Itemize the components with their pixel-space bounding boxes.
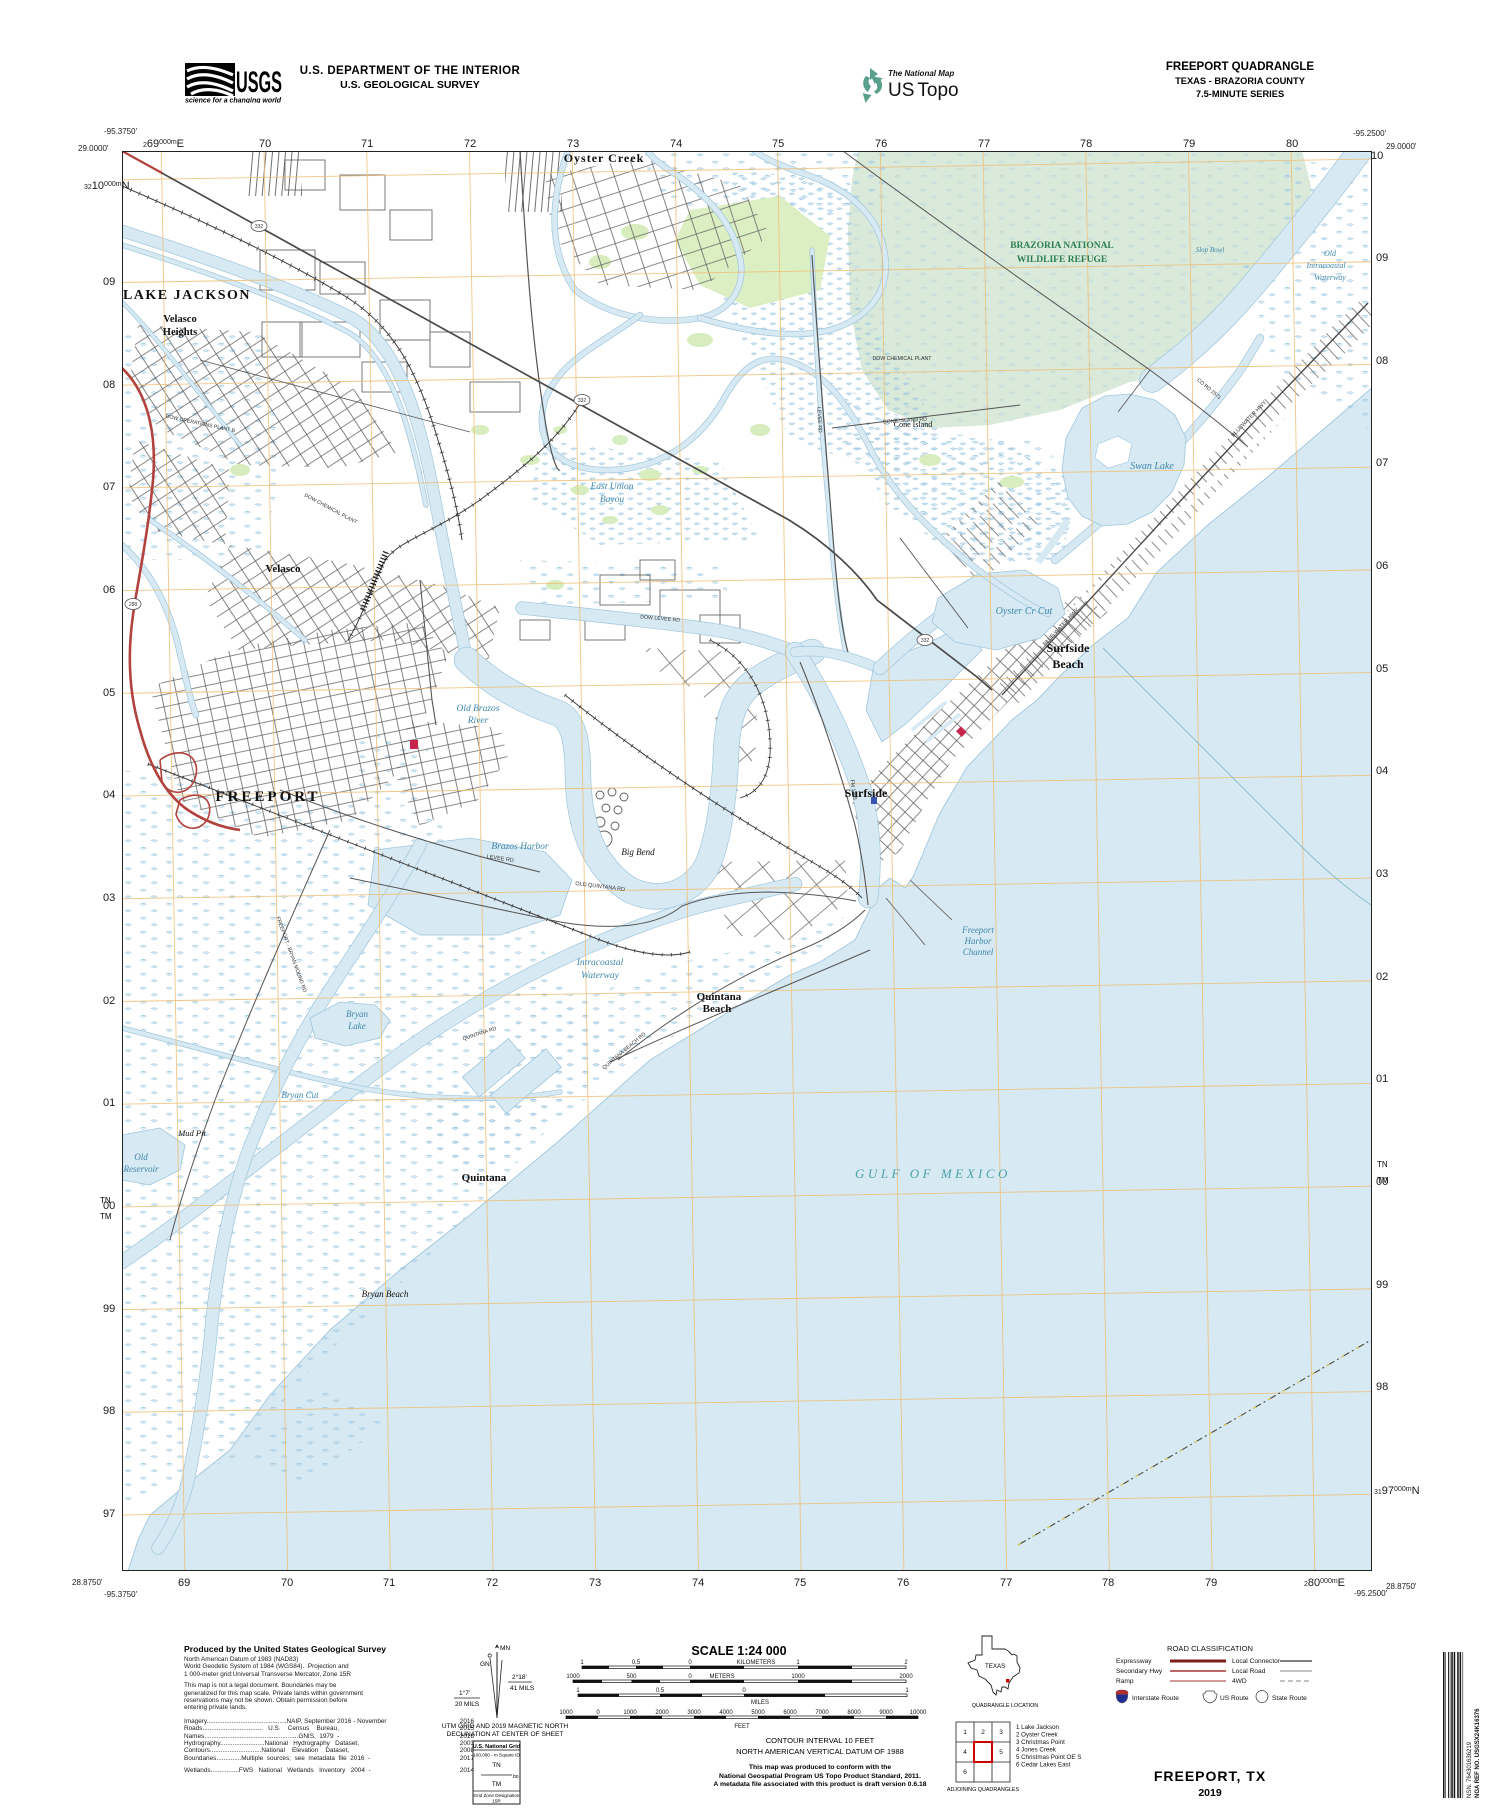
svg-text:Secondary Hwy: Secondary Hwy bbox=[1116, 1668, 1163, 1675]
svg-text:1000: 1000 bbox=[566, 1674, 580, 1680]
svg-text:bo: bo bbox=[513, 1774, 519, 1780]
svg-text:Ramp: Ramp bbox=[1116, 1678, 1134, 1685]
svg-text:U.S. National Grid: U.S. National Grid bbox=[473, 1744, 521, 1750]
svg-text:0.5: 0.5 bbox=[632, 1660, 641, 1666]
svg-text:1: 1 bbox=[963, 1729, 967, 1736]
svg-text:TN: TN bbox=[492, 1762, 501, 1769]
svg-text:6: 6 bbox=[963, 1769, 967, 1776]
svg-text:State Route: State Route bbox=[1272, 1695, 1307, 1702]
svg-text:0.5: 0.5 bbox=[656, 1688, 665, 1694]
svg-text:KILOMETERS: KILOMETERS bbox=[737, 1660, 776, 1666]
svg-text:2: 2 bbox=[981, 1729, 985, 1736]
svg-text:2000: 2000 bbox=[899, 1674, 913, 1680]
svg-text:1000: 1000 bbox=[623, 1710, 637, 1716]
svg-text:5000: 5000 bbox=[751, 1710, 765, 1716]
svg-text:1: 1 bbox=[905, 1688, 909, 1694]
svg-text:GN: GN bbox=[480, 1661, 490, 1668]
svg-text:9000: 9000 bbox=[879, 1710, 893, 1716]
svg-text:USTopo: USTopo bbox=[888, 80, 959, 101]
svg-text:TM: TM bbox=[492, 1781, 501, 1788]
svg-text:4 Jones Creek: 4 Jones Creek bbox=[1016, 1747, 1057, 1754]
svg-text:science for a changing world: science for a changing world bbox=[185, 98, 282, 104]
svg-text:6000: 6000 bbox=[783, 1710, 797, 1716]
svg-text:4000: 4000 bbox=[719, 1710, 733, 1716]
svg-text:Interstate Route: Interstate Route bbox=[1132, 1695, 1179, 1702]
svg-text:3 Christmas Point: 3 Christmas Point bbox=[1016, 1739, 1065, 1746]
svg-text:QUADRANGLE LOCATION: QUADRANGLE LOCATION bbox=[972, 1703, 1039, 1709]
svg-text:Local Connector: Local Connector bbox=[1232, 1658, 1281, 1665]
svg-text:1000: 1000 bbox=[791, 1674, 805, 1680]
svg-text:15R: 15R bbox=[492, 1799, 501, 1804]
svg-text:1000: 1000 bbox=[560, 1710, 573, 1716]
svg-text:0: 0 bbox=[688, 1660, 692, 1666]
svg-text:TEXAS: TEXAS bbox=[985, 1663, 1005, 1670]
svg-text:2 Oyster Creek: 2 Oyster Creek bbox=[1016, 1732, 1059, 1739]
svg-text:1: 1 bbox=[576, 1688, 580, 1694]
svg-text:3: 3 bbox=[999, 1729, 1003, 1736]
svg-text:0: 0 bbox=[742, 1688, 746, 1694]
svg-text:Expressway: Expressway bbox=[1116, 1658, 1152, 1665]
svg-text:FEET: FEET bbox=[734, 1724, 750, 1730]
svg-text:ADJOINING QUADRANGLES: ADJOINING QUADRANGLES bbox=[947, 1787, 1020, 1793]
svg-text:4WD: 4WD bbox=[1232, 1678, 1247, 1685]
svg-text:10000: 10000 bbox=[910, 1710, 927, 1716]
svg-text:The National Map: The National Map bbox=[888, 69, 954, 78]
svg-text:1: 1 bbox=[796, 1660, 800, 1666]
svg-text:UTM GRID AND 2019 MAGNETIC NOR: UTM GRID AND 2019 MAGNETIC NORTH bbox=[442, 1723, 569, 1730]
svg-text:20 MILS: 20 MILS bbox=[455, 1701, 480, 1708]
svg-text:8000: 8000 bbox=[847, 1710, 861, 1716]
svg-text:5 Christmas Point OE S: 5 Christmas Point OE S bbox=[1016, 1754, 1081, 1761]
svg-text:NGA REF NO. USGSX24K16376: NGA REF NO. USGSX24K16376 bbox=[1475, 1708, 1481, 1798]
svg-text:41 MILS: 41 MILS bbox=[510, 1685, 535, 1692]
svg-text:0: 0 bbox=[596, 1710, 600, 1716]
svg-text:METERS: METERS bbox=[709, 1674, 734, 1680]
svg-text:US Route: US Route bbox=[1220, 1695, 1249, 1702]
svg-text:MN: MN bbox=[500, 1645, 510, 1652]
svg-text:7000: 7000 bbox=[815, 1710, 829, 1716]
svg-text:DECLINATION AT CENTER OF SHEET: DECLINATION AT CENTER OF SHEET bbox=[447, 1731, 564, 1738]
svg-text:USGS: USGS bbox=[236, 66, 282, 99]
svg-text:MILES: MILES bbox=[751, 1700, 769, 1706]
svg-text:2000: 2000 bbox=[655, 1710, 669, 1716]
svg-text:Local Road: Local Road bbox=[1232, 1668, 1266, 1675]
svg-text:100,000 - m Square ID: 100,000 - m Square ID bbox=[473, 1753, 520, 1758]
svg-text:2: 2 bbox=[904, 1660, 908, 1666]
svg-text:1°7': 1°7' bbox=[459, 1689, 470, 1697]
svg-text:2°18': 2°18' bbox=[512, 1673, 527, 1681]
svg-text:1: 1 bbox=[580, 1660, 584, 1666]
svg-text:500: 500 bbox=[626, 1674, 637, 1680]
svg-text:1 Lake Jackson: 1 Lake Jackson bbox=[1016, 1724, 1060, 1731]
svg-text:6 Cedar Lakes East: 6 Cedar Lakes East bbox=[1016, 1762, 1071, 1769]
svg-text:5: 5 bbox=[999, 1749, 1003, 1756]
svg-text:ROAD CLASSIFICATION: ROAD CLASSIFICATION bbox=[1167, 1644, 1253, 1653]
svg-text:Grid Zone Designation: Grid Zone Designation bbox=[474, 1793, 520, 1798]
svg-text:0: 0 bbox=[688, 1674, 692, 1680]
svg-text:NSN. 764301636219: NSN. 764301636219 bbox=[1467, 1741, 1473, 1798]
svg-text:4: 4 bbox=[963, 1749, 967, 1756]
svg-text:3000: 3000 bbox=[687, 1710, 701, 1716]
